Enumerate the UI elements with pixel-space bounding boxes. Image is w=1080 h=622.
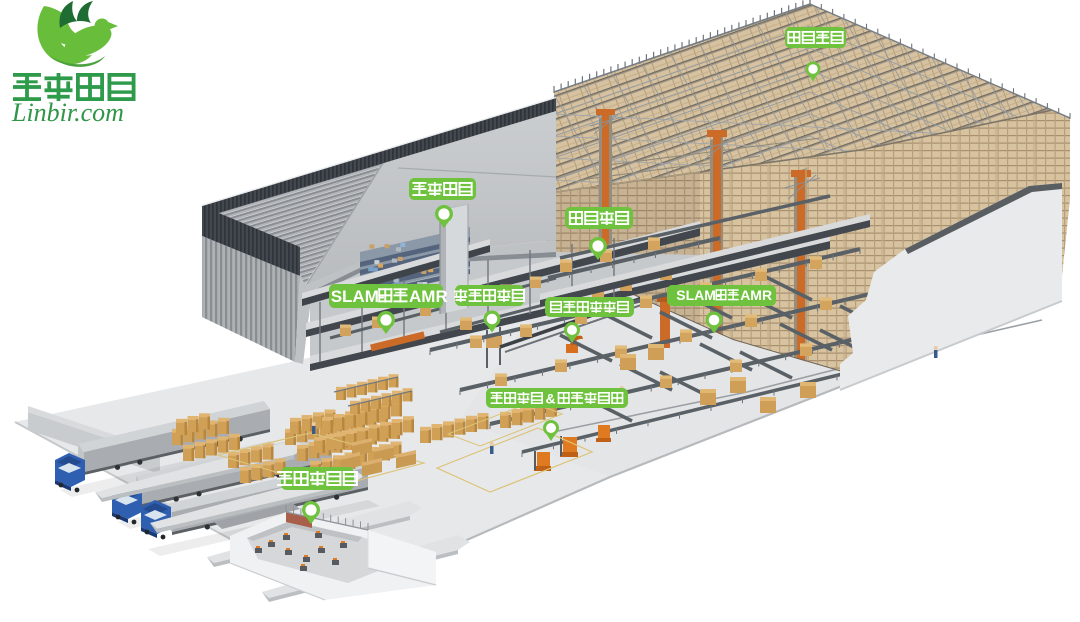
svg-text:SLAM-: SLAM- [331,287,385,306]
svg-text:AMR: AMR [740,287,772,303]
svg-text:Linbir.com: Linbir.com [11,98,124,127]
svg-text:AMR: AMR [409,287,448,306]
svg-text:SLAM-: SLAM- [676,287,721,303]
svg-text:&: & [546,391,556,407]
